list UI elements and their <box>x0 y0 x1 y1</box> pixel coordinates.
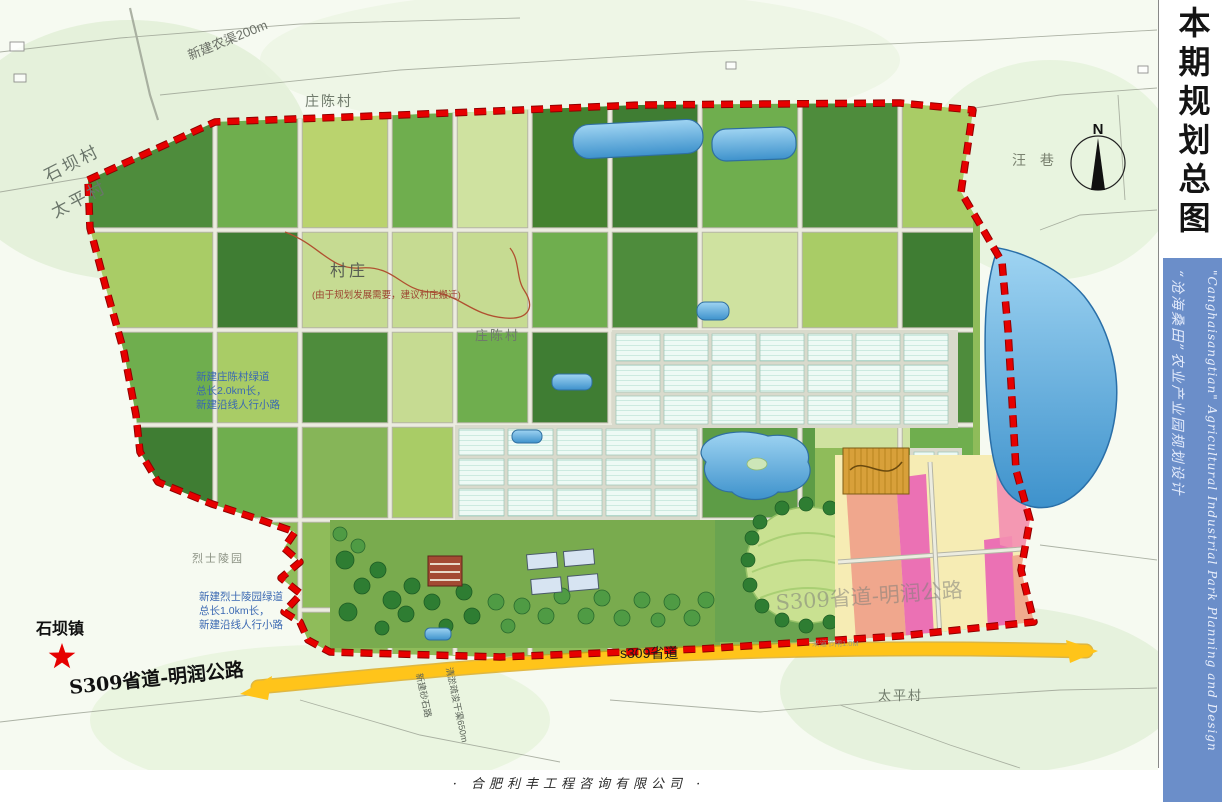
label-gate-note: 来道节闸1.0M <box>812 638 859 648</box>
orchard-block <box>843 448 909 494</box>
master-plan-map: N 新建农渠200m 庄陈村 石坝村 太平村 村庄 (由于规划发展需要，建议村庄… <box>0 0 1158 770</box>
label-greenway-mid-3: 新建沿线人行小路 <box>196 398 280 411</box>
sheet-divider-line <box>1158 0 1159 768</box>
greenhouse-area-1 <box>612 330 958 428</box>
sheet-title: 本期规划总图 <box>1177 6 1209 240</box>
label-village-note-body: (由于规划发展需要，建议村庄搬迁) <box>312 289 461 301</box>
label-greenway-martyr-3: 新建沿线人行小路 <box>199 618 283 631</box>
label-martyr-park: 烈士陵园 <box>192 551 244 565</box>
label-greenway-martyr-1: 新建烈士陵园绿道 <box>199 590 283 603</box>
compass-n-label: N <box>1093 121 1104 138</box>
project-title-strip: "Canghaisangtian" Agricultural Industria… <box>1163 258 1222 802</box>
label-zhuangchen-top: 庄陈村 <box>305 93 353 109</box>
label-s309-on-road: s309省道 <box>620 645 678 661</box>
label-greenway-mid-1: 新建庄陈村绿道 <box>196 370 270 383</box>
label-village-note-title: 村庄 <box>330 262 368 280</box>
sheet-title-block: 本期规划总图 <box>1163 6 1222 254</box>
label-wangxiang: 汪 巷 <box>1012 152 1059 168</box>
label-greenway-mid-2: 总长2.0km长， <box>196 384 267 397</box>
company-credit: · 合肥利丰工程咨询有限公司 · <box>0 773 1158 792</box>
label-greenway-martyr-2: 总长1.0km长， <box>199 604 270 617</box>
label-taiping-right: 太平村 <box>878 688 923 703</box>
label-zhuangchen-mid: 庄陈村 <box>475 328 520 343</box>
greenhouse-area-2 <box>455 425 700 520</box>
label-town-shiba: 石坝镇 <box>35 619 84 638</box>
project-title-en: "Canghaisangtian" Agricultural Industria… <box>1205 270 1219 752</box>
project-title-cn: “沧海桑田”农业产业园规划设计 <box>1168 270 1188 496</box>
forest-area <box>330 520 720 648</box>
planning-drawing-sheet: N 新建农渠200m 庄陈村 石坝村 太平村 村庄 (由于规划发展需要，建议村庄… <box>0 0 1222 802</box>
